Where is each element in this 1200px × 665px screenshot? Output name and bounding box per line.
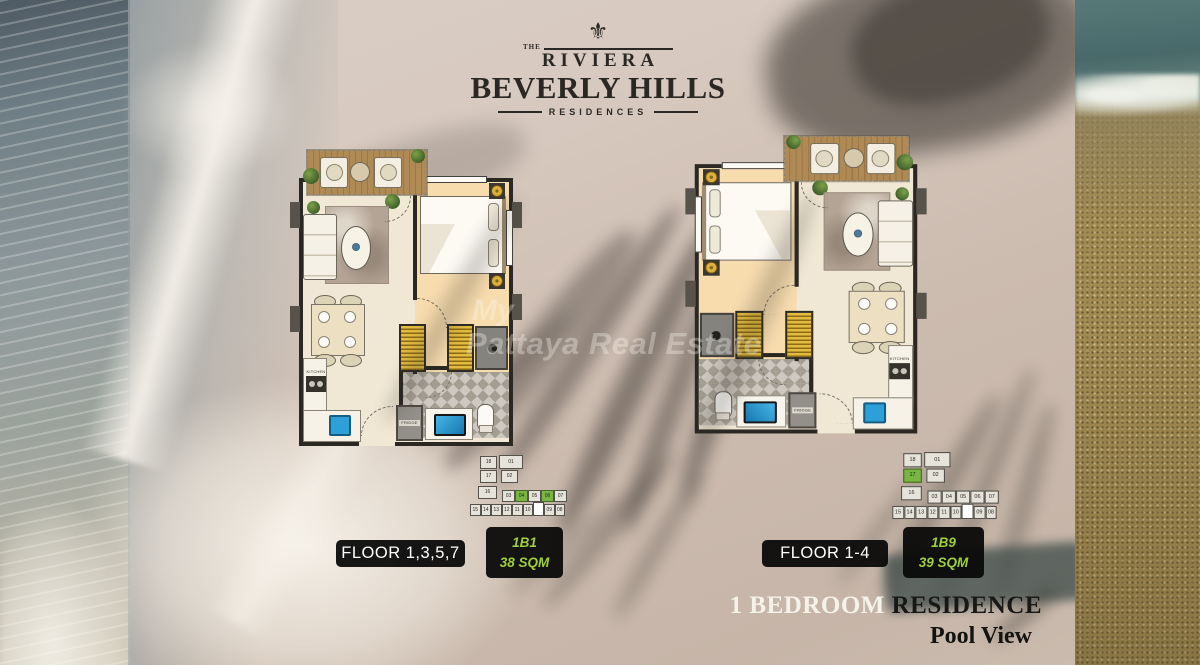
beach-photo-strip bbox=[1075, 0, 1200, 665]
pillow bbox=[709, 225, 720, 253]
plant-pot bbox=[307, 201, 320, 214]
keyplan-cell-14: 14 bbox=[481, 504, 492, 516]
keyplan-cell-17: 17 bbox=[480, 470, 497, 483]
page-title: 1 BEDROOM RESIDENCE Pool View bbox=[730, 592, 1042, 650]
keyplan-cell-17: 17 bbox=[903, 469, 922, 483]
unit-code: 1B9 bbox=[903, 533, 984, 553]
keyplan-cell-11: 11 bbox=[938, 506, 950, 519]
brand-logo: ⚜ THE RIVIERA BEVERLY HILLS RESIDENCES bbox=[456, 20, 740, 117]
floor-label-right: FLOOR 1-4 bbox=[762, 540, 888, 567]
lounge-chair bbox=[374, 157, 402, 188]
plate bbox=[344, 336, 356, 348]
keyplan-cell-01: 01 bbox=[499, 455, 523, 469]
lounge-chair bbox=[866, 143, 895, 174]
keyplan-cell-06: 06 bbox=[970, 491, 984, 504]
bedroom-side-window bbox=[695, 196, 702, 252]
shower bbox=[700, 313, 734, 357]
wall-column bbox=[290, 202, 300, 228]
coffee-table bbox=[341, 226, 371, 270]
view-subtitle: Pool View bbox=[730, 623, 1042, 650]
bed bbox=[702, 182, 791, 260]
keyplan-cell-11: 11 bbox=[512, 504, 523, 516]
fridge: FRIDGE bbox=[788, 392, 816, 428]
keyplan-cell-08: 08 bbox=[555, 504, 566, 516]
keyplan-cell-blank bbox=[533, 502, 544, 516]
residence-title-accent: 1 BEDROOM bbox=[730, 592, 885, 619]
keyplan-cell-09: 09 bbox=[544, 504, 555, 516]
keyplan-cell-16: 16 bbox=[901, 486, 922, 500]
palm-shadow bbox=[487, 200, 689, 491]
plant-pot bbox=[303, 168, 319, 184]
unit-label-right: 1B9 39 SQM bbox=[903, 527, 984, 578]
floorplan-1b1: KITCHEN FRIDGE bbox=[299, 150, 513, 446]
logo-title: BEVERLY HILLS bbox=[456, 72, 740, 105]
wall-column bbox=[685, 188, 695, 214]
unit-code: 1B1 bbox=[486, 533, 563, 553]
plate bbox=[885, 298, 897, 310]
kitchen-sink bbox=[329, 415, 351, 436]
keyplan-cell-18: 18 bbox=[903, 453, 922, 467]
fridge-label: FRIDGE bbox=[399, 420, 419, 426]
logo-line bbox=[654, 111, 698, 113]
kitchen-label: KITCHEN bbox=[303, 370, 329, 374]
ocean-photo-strip bbox=[0, 0, 130, 665]
keyplan-cell-18: 18 bbox=[480, 456, 497, 469]
ceiling-fan bbox=[489, 273, 505, 289]
keyplan-cell-15: 15 bbox=[892, 506, 904, 519]
interior-wall bbox=[413, 182, 417, 300]
residence-title: 1 BEDROOM RESIDENCE bbox=[730, 592, 1042, 620]
wall-column bbox=[512, 294, 522, 320]
dining-chair bbox=[852, 341, 875, 354]
wash-basin bbox=[434, 414, 466, 436]
keyplan-cell-12: 12 bbox=[502, 504, 513, 516]
bedroom-window bbox=[425, 176, 487, 183]
keyplan-cell-13: 13 bbox=[915, 506, 927, 519]
keyplan-cell-04: 04 bbox=[515, 490, 528, 502]
lounge-chair bbox=[320, 157, 348, 188]
keyplan-left: 180117021603040506071514131211100908 bbox=[468, 455, 566, 519]
plate bbox=[858, 323, 870, 335]
palm-shadow bbox=[609, 467, 708, 622]
floor-label-left: FLOOR 1,3,5,7 bbox=[336, 540, 465, 567]
keyplan-cell-07: 07 bbox=[554, 490, 567, 502]
plant-pot bbox=[895, 187, 909, 200]
keyplan-right: 180117021603040506071514131211100908 bbox=[890, 452, 998, 522]
plant-pot bbox=[786, 135, 801, 149]
palm-shadow bbox=[838, 0, 1062, 124]
keyplan-cell-02: 02 bbox=[501, 470, 518, 483]
dining-table bbox=[311, 304, 365, 356]
balcony-table bbox=[350, 162, 370, 182]
toilet bbox=[714, 391, 732, 419]
wall-column bbox=[916, 188, 926, 214]
keyplan-cell-01: 01 bbox=[924, 452, 950, 467]
fridge: FRIDGE bbox=[396, 405, 423, 441]
entry-door-opening bbox=[817, 424, 854, 433]
wall-column bbox=[512, 202, 522, 228]
keyplan-cell-04: 04 bbox=[942, 491, 956, 504]
dining-table bbox=[849, 291, 905, 343]
pillow bbox=[488, 239, 499, 267]
keyplan-cell-08: 08 bbox=[985, 506, 997, 519]
keyplan-cell-05: 05 bbox=[528, 490, 541, 502]
shower bbox=[475, 326, 508, 370]
plant-pot bbox=[896, 154, 913, 170]
unit-label-left: 1B1 38 SQM bbox=[486, 527, 563, 578]
keyplan-cell-05: 05 bbox=[956, 491, 970, 504]
bathroom-vanity bbox=[736, 395, 786, 427]
plant-pot bbox=[411, 149, 425, 163]
plate bbox=[858, 298, 870, 310]
logo-line bbox=[498, 111, 542, 113]
plate bbox=[885, 323, 897, 335]
keyplan-cell-13: 13 bbox=[491, 504, 502, 516]
toilet bbox=[477, 404, 494, 432]
logo-subtitle-row: RESIDENCES bbox=[498, 107, 698, 117]
wardrobe bbox=[735, 311, 763, 359]
pillow bbox=[488, 203, 499, 231]
kitchen-sink bbox=[863, 402, 886, 423]
logo-subtitle: RESIDENCES bbox=[549, 107, 648, 117]
sofa bbox=[303, 214, 337, 280]
palm-shadow bbox=[989, 401, 1060, 599]
sofa bbox=[878, 200, 913, 266]
stove bbox=[306, 376, 326, 392]
keyplan-cell-blank bbox=[962, 504, 974, 519]
ceiling-fan bbox=[703, 260, 720, 276]
bathroom-vanity bbox=[425, 408, 473, 440]
duvet-fold bbox=[421, 224, 468, 273]
keyplan-cell-09: 09 bbox=[974, 506, 986, 519]
bedroom-window bbox=[722, 162, 786, 169]
lounge-chair bbox=[810, 143, 839, 174]
fridge-label: FRIDGE bbox=[792, 407, 813, 413]
sea-water bbox=[1075, 0, 1200, 100]
keyplan-cell-10: 10 bbox=[950, 506, 962, 519]
keyplan-cell-06: 06 bbox=[541, 490, 554, 502]
interior-wall bbox=[795, 168, 799, 287]
unit-area: 38 SQM bbox=[486, 553, 563, 573]
keyplan-cell-14: 14 bbox=[904, 506, 916, 519]
golden-sand bbox=[1075, 100, 1200, 665]
keyplan-cell-03: 03 bbox=[927, 491, 941, 504]
coffee-table bbox=[842, 212, 873, 256]
balcony-table bbox=[843, 148, 864, 168]
floorplan-1b9: KITCHEN FRIDGE bbox=[695, 136, 918, 433]
keyplan-cell-02: 02 bbox=[926, 469, 945, 483]
keyplan-cell-12: 12 bbox=[927, 506, 939, 519]
duvet-fold bbox=[742, 211, 791, 260]
plate bbox=[318, 311, 330, 323]
residence-title-rest: RESIDENCE bbox=[892, 592, 1042, 619]
keyplan-cell-15: 15 bbox=[470, 504, 481, 516]
dining-chair bbox=[340, 354, 362, 367]
entry-door-opening bbox=[359, 437, 395, 446]
ceiling-fan bbox=[489, 183, 505, 199]
ceiling-fan bbox=[703, 169, 720, 185]
pillow bbox=[709, 189, 720, 217]
wall-column bbox=[290, 306, 300, 332]
bed bbox=[420, 196, 506, 274]
keyplan-cell-03: 03 bbox=[502, 490, 515, 502]
fleur-icon: ⚜ bbox=[456, 20, 740, 43]
keyplan-cell-07: 07 bbox=[985, 491, 999, 504]
stove bbox=[889, 363, 910, 379]
balcony-deck bbox=[307, 150, 427, 195]
wardrobe bbox=[785, 311, 813, 359]
wardrobe bbox=[447, 324, 474, 372]
bathroom-wall bbox=[760, 353, 785, 357]
keyplan-cell-16: 16 bbox=[478, 486, 497, 499]
wash-basin bbox=[744, 401, 777, 423]
kitchen-label: KITCHEN bbox=[886, 357, 913, 361]
plate bbox=[318, 336, 330, 348]
brochure-page: ⚜ THE RIVIERA BEVERLY HILLS RESIDENCES bbox=[0, 0, 1200, 665]
wardrobe bbox=[399, 324, 426, 372]
wall-column bbox=[685, 281, 695, 307]
wall-column bbox=[916, 293, 926, 319]
balcony-deck bbox=[784, 136, 909, 181]
logo-the: THE bbox=[523, 44, 541, 51]
unit-area: 39 SQM bbox=[903, 553, 984, 573]
plate bbox=[344, 311, 356, 323]
logo-brand: RIVIERA bbox=[456, 51, 740, 72]
keyplan-cell-10: 10 bbox=[523, 504, 534, 516]
